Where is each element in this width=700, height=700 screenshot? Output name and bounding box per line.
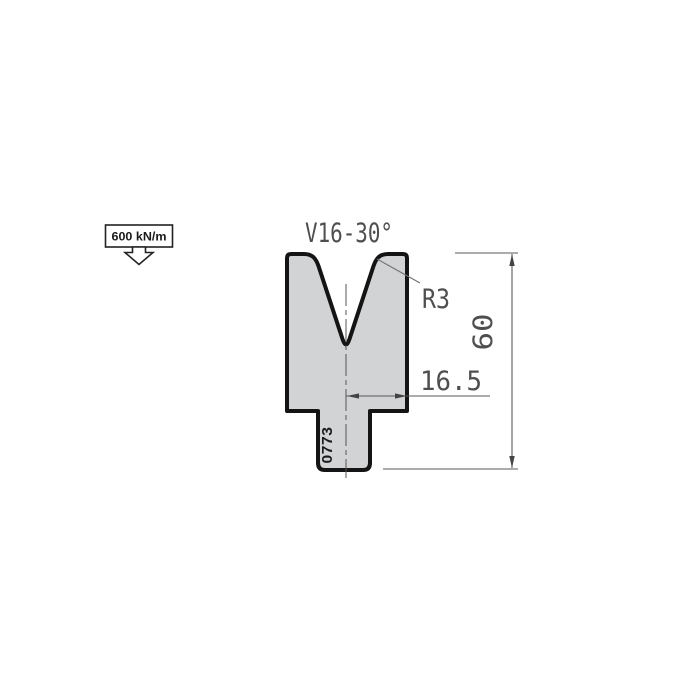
width-dim-text: 16.5	[420, 366, 482, 397]
radius-label: R3	[422, 284, 450, 315]
height-arrow-up-icon	[509, 254, 514, 266]
die-profile-shape	[287, 254, 407, 470]
drawing-canvas: 600 kN/m V16-30° 0773 R3 60	[0, 0, 700, 700]
force-label-text: 600 kN/m	[112, 232, 167, 244]
die-id-text: 0773	[320, 427, 336, 464]
force-callout: 600 kN/m	[106, 225, 173, 265]
height-arrow-down-icon	[509, 456, 514, 468]
die-title-text: V16-30°	[305, 218, 393, 249]
force-down-arrow-icon	[125, 247, 153, 265]
technical-drawing: 600 kN/m V16-30° 0773 R3 60	[0, 0, 700, 700]
height-dim-text: 60	[468, 314, 499, 351]
